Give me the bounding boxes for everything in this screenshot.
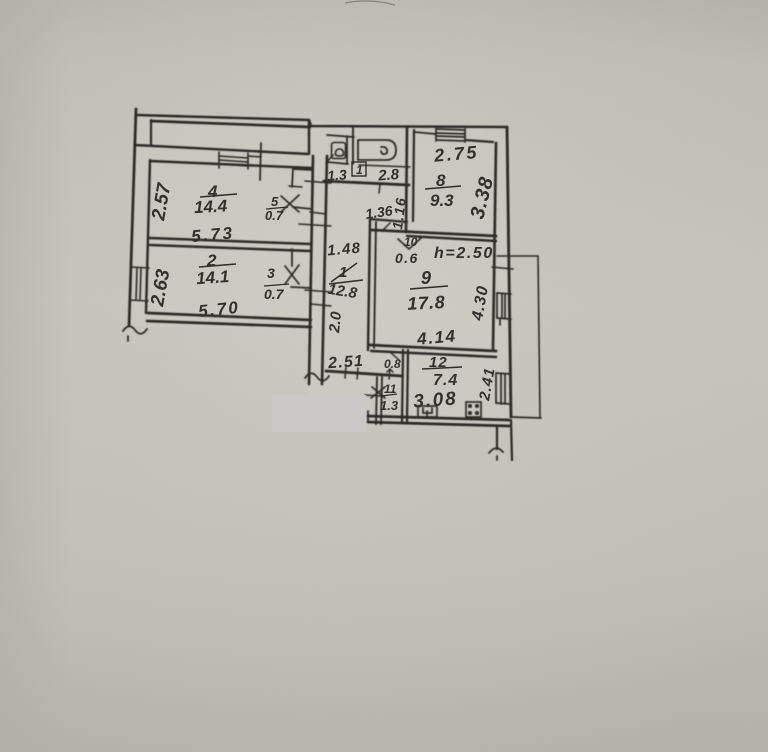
svg-text:5: 5	[271, 194, 279, 209]
svg-text:2.8: 2.8	[377, 166, 401, 185]
svg-text:2.75: 2.75	[432, 142, 479, 166]
svg-text:1.3: 1.3	[380, 398, 399, 413]
svg-text:9: 9	[421, 268, 431, 288]
svg-text:0.7: 0.7	[264, 286, 285, 302]
svg-text:7.4: 7.4	[433, 372, 458, 389]
svg-text:14.4: 14.4	[194, 196, 229, 217]
svg-text:0.8: 0.8	[384, 357, 401, 371]
svg-text:9.3: 9.3	[430, 191, 454, 210]
svg-text:h=2.50: h=2.50	[434, 245, 494, 262]
svg-text:1: 1	[356, 163, 363, 177]
svg-text:10: 10	[404, 235, 418, 249]
svg-text:2.51: 2.51	[327, 353, 365, 373]
svg-text:0.7: 0.7	[265, 208, 284, 223]
svg-text:1.3: 1.3	[327, 166, 348, 183]
svg-text:17.8: 17.8	[407, 292, 446, 314]
svg-text:5.73: 5.73	[190, 223, 235, 246]
svg-text:4.14: 4.14	[415, 326, 457, 348]
svg-text:2.0: 2.0	[326, 310, 345, 334]
svg-text:1.48: 1.48	[327, 240, 362, 260]
svg-text:14.1: 14.1	[196, 267, 230, 288]
svg-text:3.08: 3.08	[413, 388, 459, 412]
svg-text:0.6: 0.6	[395, 250, 419, 266]
svg-text:3: 3	[267, 265, 275, 281]
